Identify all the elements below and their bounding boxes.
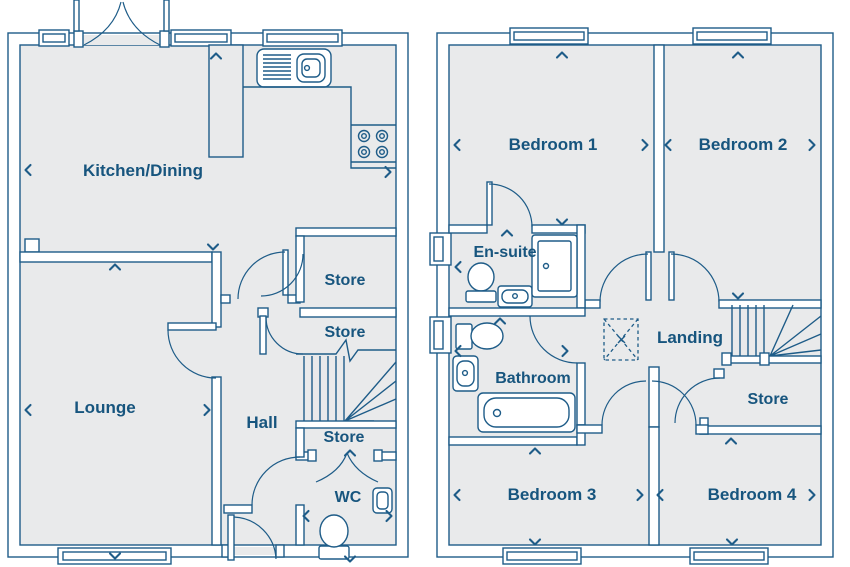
floor-area xyxy=(20,45,396,545)
basin-icon xyxy=(453,356,478,391)
toilet-icon xyxy=(319,515,349,559)
room-label-ensuite: En-suite xyxy=(473,244,536,261)
basin-icon xyxy=(498,286,532,307)
room-label-hall: Hall xyxy=(246,413,277,432)
room-label-store-under-stairs: Store xyxy=(324,429,365,446)
room-label-bedroom1: Bedroom 1 xyxy=(509,135,598,154)
sink-icon xyxy=(257,49,331,87)
french-doors xyxy=(74,0,169,47)
toilet-icon xyxy=(466,263,496,302)
floorplan-drawing: Kitchen/Dining Lounge Hall Store Store S… xyxy=(0,0,850,567)
room-label-store-middle: Store xyxy=(325,324,366,341)
ground-floor-plan: Kitchen/Dining Lounge Hall Store Store S… xyxy=(8,0,408,564)
room-label-landing: Landing xyxy=(657,328,723,347)
room-label-lounge: Lounge xyxy=(74,398,135,417)
room-label-bedroom4: Bedroom 4 xyxy=(708,485,797,504)
wall-notch xyxy=(25,239,39,252)
shower-icon xyxy=(532,235,577,297)
first-floor-plan: Bedroom 1 Bedroom 2 En-suite Bathroom La… xyxy=(430,28,833,564)
window xyxy=(58,548,171,564)
room-label-wc: WC xyxy=(335,489,362,506)
toilet-icon xyxy=(456,323,503,349)
room-label-store: Store xyxy=(748,391,789,408)
kitchen-tall-unit xyxy=(209,45,243,157)
floorplan-page: Kitchen/Dining Lounge Hall Store Store S… xyxy=(0,0,850,567)
room-label-bedroom3: Bedroom 3 xyxy=(508,485,597,504)
room-label-store-top: Store xyxy=(325,272,366,289)
basin-icon xyxy=(373,488,392,513)
landing-wall xyxy=(585,300,600,308)
kitchen-lounge-wall xyxy=(20,252,212,262)
room-label-kitchen: Kitchen/Dining xyxy=(83,161,203,180)
room-label-bathroom: Bathroom xyxy=(495,370,571,387)
bath-icon xyxy=(478,393,575,432)
landing-wall xyxy=(719,300,821,308)
room-label-bedroom2: Bedroom 2 xyxy=(699,135,788,154)
